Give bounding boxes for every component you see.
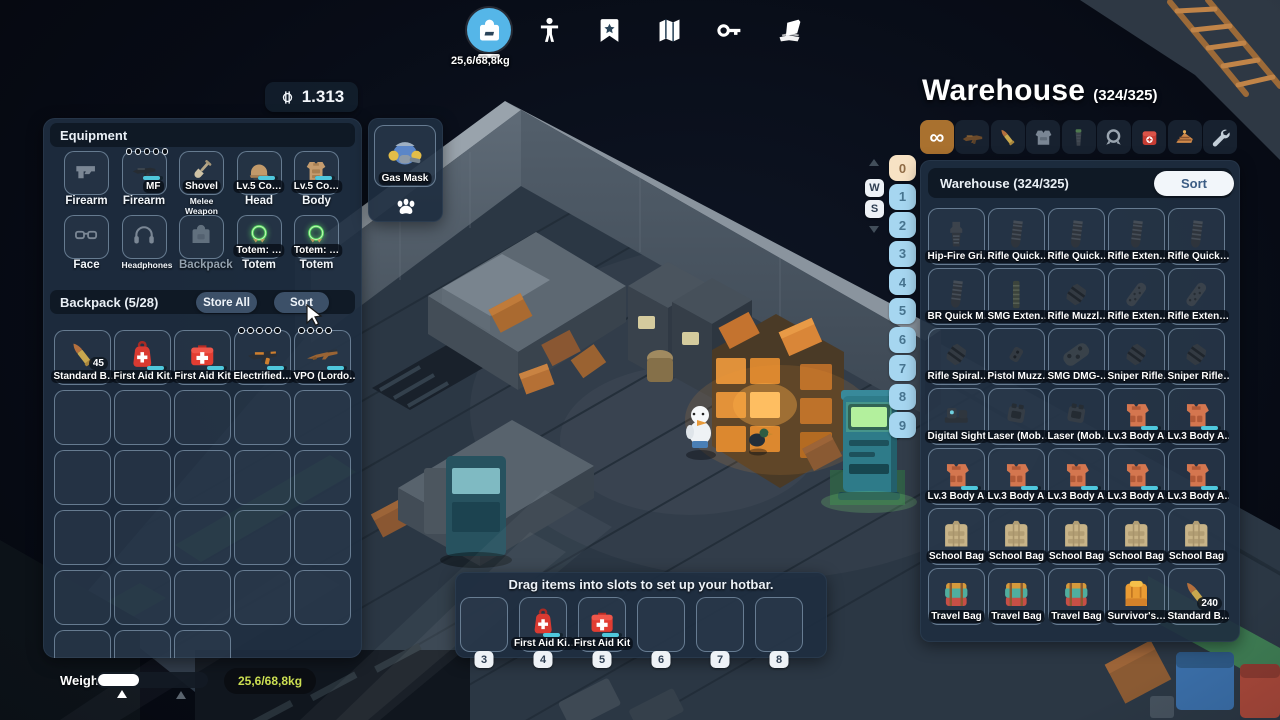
equipment-cell: ShovelMelee Weapon: [179, 151, 224, 213]
backpack-title: Backpack (5/28): [60, 295, 158, 310]
scroll-up-arrow[interactable]: [869, 159, 879, 166]
hotbar-key-badge: 7: [711, 651, 730, 668]
equipment-cell: Totem: …Totem: [294, 215, 339, 277]
equipment-cell: Headphones: [122, 215, 167, 277]
item-label: Rifle Exten…: [1105, 310, 1169, 323]
warehouse-tab-medical[interactable]: [1132, 120, 1166, 154]
warehouse-tab-tools[interactable]: [1203, 120, 1237, 154]
equipment-caption: Head: [237, 196, 282, 206]
key-icon: [715, 16, 744, 45]
item-label: Travel Bag: [1048, 610, 1105, 623]
hotbar-number-key-3[interactable]: 3: [889, 241, 916, 267]
hotbar-key-badge: 5: [593, 651, 612, 668]
hotbar-slot-wrap: 6: [637, 597, 685, 652]
hotbar-number-key-9[interactable]: 9: [889, 412, 916, 438]
item-label: Lv.5 Co…: [233, 180, 284, 193]
backpack-empty-slot[interactable]: [54, 390, 111, 445]
wrench-tab-icon: [1209, 126, 1232, 149]
weight-threshold-marker: [176, 691, 186, 699]
warehouse-item-slot[interactable]: School Bag: [928, 508, 985, 565]
item-label: First Aid Ki…: [511, 637, 575, 650]
item-label: Travel Bag: [928, 610, 985, 623]
paw-icon[interactable]: [393, 194, 419, 218]
toolbar-tab-missions[interactable]: [587, 8, 631, 52]
item-label: SMG DMG-…: [1045, 370, 1109, 383]
item-label: Lv.3 Body A…: [1165, 490, 1229, 503]
backpack-item-slot[interactable]: First Aid Kit: [174, 330, 231, 385]
equipment-cell: Lv.5 Co…Body: [294, 151, 339, 213]
item-label: Laser (Mob…: [985, 430, 1049, 443]
warehouse-item-slot[interactable]: Sniper Rifle…: [1108, 328, 1165, 385]
hotbar-key-badge: 3: [475, 651, 494, 668]
warehouse-item-slot[interactable]: Lv.3 Body A…: [1168, 448, 1225, 505]
item-label: Rifle Quick…: [1045, 250, 1109, 263]
warehouse-filter-tabs: ∞: [920, 120, 1237, 154]
item-label: First Aid Kit: [171, 370, 233, 383]
item-label: Totem: …: [291, 244, 342, 257]
warehouse-item-slot[interactable]: Digital Sight: [928, 388, 985, 445]
item-label: First Aid Kit: [571, 637, 633, 650]
backpack-empty-slot[interactable]: [54, 450, 111, 505]
warehouse-item-slot[interactable]: Rifle Muzzl…: [1048, 268, 1105, 325]
equipment-panel: Equipment FirearmMFFirearmShovelMelee We…: [43, 118, 362, 658]
hotbar-slot-wrap: 8: [755, 597, 803, 652]
rifle-tab-icon: [961, 126, 984, 149]
warehouse-item-slot[interactable]: Lv.3 Body A…: [928, 448, 985, 505]
hotbar-key-badge: 8: [770, 651, 789, 668]
item-label: Lv.3 Body A…: [1165, 430, 1229, 443]
equipment-cell: Backpack: [179, 215, 224, 277]
item-label: Travel Bag: [988, 610, 1045, 623]
equipment-cell: Face: [64, 215, 109, 277]
warehouse-sort-button[interactable]: Sort: [1154, 171, 1234, 196]
backpack-empty-slot[interactable]: [294, 390, 351, 445]
warehouse-grid: Hip-Fire Gri…Rifle Quick…Rifle Quick…Rif…: [928, 208, 1225, 625]
equipment-slot-melee-weapon[interactable]: Shovel: [179, 151, 224, 195]
backpack-empty-slot[interactable]: [294, 570, 351, 625]
warehouse-item-slot[interactable]: Laser (Mob…: [1048, 388, 1105, 445]
cake-tab-icon: [1173, 126, 1196, 149]
equipment-slot-totem[interactable]: Totem: …: [294, 215, 339, 259]
warehouse-tab-all[interactable]: ∞: [920, 120, 954, 154]
equipment-caption: Firearm: [122, 196, 167, 206]
hotbar-slots: 3First Aid Ki…4First Aid Kit5678: [460, 597, 803, 652]
item-label: School Bag: [926, 550, 987, 563]
gas-mask-panel: Gas Mask: [368, 118, 443, 222]
backpack-empty-slot[interactable]: [294, 450, 351, 505]
equipment-header: Equipment: [50, 123, 355, 147]
equipment-cell: Lv.5 Co…Head: [237, 151, 282, 213]
warehouse-item-slot[interactable]: School Bag: [1048, 508, 1105, 565]
backpack-item-slot[interactable]: First Aid Kit…: [114, 330, 171, 385]
item-label: Lv.3 Body A…: [925, 490, 989, 503]
headphones-icon: [123, 216, 166, 253]
item-label: Sniper Rifle…: [1105, 370, 1169, 383]
item-label: Standard B…: [51, 370, 115, 383]
equipment-slot-totem[interactable]: Totem: …: [237, 215, 282, 259]
equipment-grid: FirearmMFFirearmShovelMelee WeaponLv.5 C…: [64, 151, 339, 277]
toolbar-tab-keys[interactable]: [707, 8, 751, 52]
medbox-tab-icon: [1138, 126, 1161, 149]
hotbar-key-column: 0123456789: [889, 155, 916, 438]
warehouse-header-label: Warehouse (324/325): [940, 176, 1069, 191]
item-label: School Bag: [1046, 550, 1107, 563]
item-label: Rifle Exten…: [1105, 250, 1169, 263]
hotbar-key-badge: 6: [652, 651, 671, 668]
toolbar-tab-character[interactable]: [527, 8, 571, 52]
item-label: Lv.3 Body A…: [985, 490, 1049, 503]
equipment-caption: Totem: [237, 260, 282, 270]
warehouse-item-slot[interactable]: 240Standard B…: [1168, 568, 1225, 625]
quality-dots: [238, 327, 281, 334]
item-label: Electrified…: [231, 370, 295, 383]
quantity-badge: 240: [1197, 597, 1222, 610]
equipment-caption: Headphones: [122, 260, 167, 270]
item-label: Lv.5 Co…: [291, 180, 342, 193]
bookmark-star-icon: [595, 16, 624, 45]
map-icon: [655, 16, 684, 45]
warehouse-tab-accessories[interactable]: [1097, 120, 1131, 154]
backpack-empty-slot[interactable]: [114, 390, 171, 445]
backpack-item-slot[interactable]: 45Standard B…: [54, 330, 111, 385]
backpack-empty-slot[interactable]: [174, 630, 231, 658]
warehouse-item-slot[interactable]: Rifle Quick…: [1048, 208, 1105, 265]
gas-mask-slot[interactable]: Gas Mask: [374, 125, 436, 187]
backpack-empty-slot[interactable]: [174, 510, 231, 565]
warehouse-item-slot[interactable]: Lv.3 Body A…: [1168, 388, 1225, 445]
toolbar-weight-caption: 25,6/68,8kg: [451, 55, 510, 67]
equipment-caption: Firearm: [64, 196, 109, 206]
warehouse-item-slot[interactable]: Lv.3 Body A…: [1108, 388, 1165, 445]
hotbar-number-key-2[interactable]: 2: [889, 212, 916, 238]
hotbar-number-key-8[interactable]: 8: [889, 384, 916, 410]
backpack-empty-slot[interactable]: [174, 390, 231, 445]
item-label: School Bag: [986, 550, 1047, 563]
weight-bar-fill: [98, 674, 139, 686]
vest-tab-icon: [1032, 126, 1055, 149]
warehouse-tab-food[interactable]: [1168, 120, 1202, 154]
backpack-sort-button[interactable]: Sort: [274, 292, 329, 313]
hotbar-slot-wrap: First Aid Ki…4: [519, 597, 567, 652]
warehouse-item-slot[interactable]: Rifle Quick…: [1168, 208, 1225, 265]
item-label: School Bag: [1166, 550, 1227, 563]
equipment-cell: MFFirearm: [122, 151, 167, 213]
equipment-caption: Body: [294, 196, 339, 206]
warehouse-tab-ammo[interactable]: [991, 120, 1025, 154]
item-label: Rifle Quick…: [985, 250, 1049, 263]
item-label: Digital Sight: [925, 430, 989, 443]
hotbar-number-key-6[interactable]: 6: [889, 327, 916, 353]
warehouse-item-slot[interactable]: Rifle Exten…: [1108, 268, 1165, 325]
warehouse-tab-firearms[interactable]: [955, 120, 989, 154]
item-label: School Bag: [1106, 550, 1167, 563]
infinity-icon: ∞: [930, 127, 945, 148]
item-label: Rifle Muzzl…: [1045, 310, 1109, 323]
warehouse-tab-attachments[interactable]: [1062, 120, 1096, 154]
backpack-empty-slot[interactable]: [114, 510, 171, 565]
backpack-empty-slot[interactable]: [294, 510, 351, 565]
warehouse-panel: Warehouse (324/325) Sort Hip-Fire Gri…Ri…: [920, 160, 1240, 642]
backpack-ghost-icon: [180, 216, 223, 253]
warehouse-item-slot[interactable]: Rifle Quick…: [988, 208, 1045, 265]
item-label: VPO (Lordo…: [291, 370, 355, 383]
item-label: Survivor's…: [1105, 610, 1169, 623]
warehouse-tab-armor[interactable]: [1026, 120, 1060, 154]
hotbar-slot-3[interactable]: [460, 597, 508, 652]
warehouse-item-slot[interactable]: School Bag: [1108, 508, 1165, 565]
warehouse-item-slot[interactable]: Hip-Fire Gri…: [928, 208, 985, 265]
backpack-empty-slot[interactable]: [114, 630, 171, 658]
warehouse-item-slot[interactable]: Travel Bag: [988, 568, 1045, 625]
warehouse-item-slot[interactable]: Travel Bag: [928, 568, 985, 625]
warehouse-item-slot[interactable]: Pistol Muzz…: [988, 328, 1045, 385]
hotbar-number-key-0[interactable]: 0: [889, 155, 916, 181]
equipment-caption: Face: [64, 260, 109, 270]
quality-dots: [298, 327, 332, 334]
key-w: W: [865, 179, 884, 197]
warehouse-item-slot[interactable]: Lv.3 Body A…: [1108, 448, 1165, 505]
weight-value: 25,6/68,8kg: [224, 668, 316, 694]
warehouse-item-slot[interactable]: School Bag: [1168, 508, 1225, 565]
equipment-title: Equipment: [60, 128, 127, 143]
journal-icon: [775, 16, 804, 45]
backpack-grid: 45Standard B…First Aid Kit…First Aid Kit…: [54, 330, 351, 658]
backpack-empty-slot[interactable]: [174, 570, 231, 625]
weight-bar: [96, 672, 208, 688]
hotbar-number-key-7[interactable]: 7: [889, 355, 916, 381]
hotbar-key-badge: 4: [534, 651, 553, 668]
game-screen: 25,6/68,8kg 1.313 Equipment FirearmMFFir…: [0, 0, 1280, 720]
person-icon: [535, 16, 564, 45]
item-label: Rifle Spiral…: [925, 370, 989, 383]
store-all-button[interactable]: Store All: [196, 292, 257, 313]
item-label: Lv.3 Body A…: [1045, 490, 1109, 503]
currency-value: 1.313: [302, 87, 345, 107]
backpack-item-slot[interactable]: Electrified…: [234, 330, 291, 385]
item-label: Rifle Exten…: [1165, 310, 1229, 323]
grip-tab-icon: [1067, 126, 1090, 149]
warehouse-count: (324/325): [1093, 87, 1157, 104]
hotbar-number-key-5[interactable]: 5: [889, 298, 916, 324]
ring-tab-icon: [1102, 126, 1125, 149]
equipment-slot-face[interactable]: [64, 215, 109, 259]
warehouse-item-slot[interactable]: Lv.3 Body A…: [988, 448, 1045, 505]
currency-display: 1.313: [265, 82, 358, 112]
backpack-empty-slot[interactable]: [54, 630, 111, 658]
hotbar-slot-wrap: 7: [696, 597, 744, 652]
scroll-down-arrow[interactable]: [869, 226, 879, 233]
warehouse-item-slot[interactable]: Sniper Rifle…: [1168, 328, 1225, 385]
backpack-empty-slot[interactable]: [114, 570, 171, 625]
item-label: BR Quick M…: [925, 310, 989, 323]
item-label: Lv.3 Body A…: [1105, 430, 1169, 443]
warehouse-title-text: Warehouse: [922, 74, 1085, 108]
warehouse-item-slot[interactable]: Travel Bag: [1048, 568, 1105, 625]
equipment-caption: Melee Weapon: [179, 196, 224, 216]
warehouse-item-slot[interactable]: SMG Exten…: [988, 268, 1045, 325]
equipment-slot-head[interactable]: Lv.5 Co…: [237, 151, 282, 195]
hotbar-slot-5[interactable]: First Aid Kit: [578, 597, 626, 652]
hotbar-slot-wrap: First Aid Kit5: [578, 597, 626, 652]
hotbar-slot-4[interactable]: First Aid Ki…: [519, 597, 567, 652]
key-s: S: [865, 200, 884, 218]
backpack-empty-slot[interactable]: [234, 510, 291, 565]
hotbar-number-key-4[interactable]: 4: [889, 269, 916, 295]
item-label: Totem: …: [233, 244, 284, 257]
backpack-empty-slot[interactable]: [54, 510, 111, 565]
equipment-caption: Backpack: [179, 260, 224, 270]
item-label: Laser (Mob…: [1045, 430, 1109, 443]
backpack-empty-slot[interactable]: [54, 570, 111, 625]
warehouse-item-slot[interactable]: Rifle Spiral…: [928, 328, 985, 385]
coin-icon: [279, 89, 296, 106]
hotbar-slot-7[interactable]: [696, 597, 744, 652]
glasses-icon: [65, 216, 108, 253]
hotbar-slot-wrap: 3: [460, 597, 508, 652]
item-label: First Aid Kit…: [111, 370, 175, 383]
equipment-slot-firearm[interactable]: MF: [122, 151, 167, 195]
item-label: Rifle Quick…: [1165, 250, 1229, 263]
equipment-slot-firearm[interactable]: [64, 151, 109, 195]
backpack-empty-slot[interactable]: [174, 450, 231, 505]
quality-dots: [126, 148, 169, 155]
hotbar-slot-8[interactable]: [755, 597, 803, 652]
warehouse-item-slot[interactable]: Rifle Exten…: [1168, 268, 1225, 325]
equipment-slot-body[interactable]: Lv.5 Co…: [294, 151, 339, 195]
weight-marker: [117, 690, 127, 698]
item-label: Pistol Muzz…: [985, 370, 1049, 383]
backpack-item-slot[interactable]: VPO (Lordo…: [294, 330, 351, 385]
backpack-empty-slot[interactable]: [234, 450, 291, 505]
equipment-slot-headphones[interactable]: [122, 215, 167, 259]
item-label: Hip-Fire Gri…: [925, 250, 989, 263]
warehouse-title: Warehouse (324/325): [922, 74, 1158, 108]
quantity-badge: 45: [89, 357, 108, 370]
item-label: MF: [143, 180, 163, 193]
equipment-cell: Firearm: [64, 151, 109, 213]
bullet-icon: [996, 126, 1019, 149]
warehouse-item-slot[interactable]: BR Quick M…: [928, 268, 985, 325]
top-toolbar: [467, 8, 811, 52]
backpack-icon: [475, 16, 504, 45]
item-label: Standard B…: [1165, 610, 1229, 623]
toolbar-tab-map[interactable]: [647, 8, 691, 52]
equipment-cell: Totem: …Totem: [237, 215, 282, 277]
item-label: Gas Mask: [379, 172, 432, 185]
hotbar-number-key-1[interactable]: 1: [889, 184, 916, 210]
warehouse-item-slot[interactable]: Survivor's…: [1108, 568, 1165, 625]
backpack-empty-slot[interactable]: [234, 390, 291, 445]
warehouse-item-slot[interactable]: School Bag: [988, 508, 1045, 565]
item-label: SMG Exten…: [985, 310, 1049, 323]
backpack-empty-slot[interactable]: [234, 570, 291, 625]
toolbar-tab-inventory[interactable]: [467, 8, 511, 52]
warehouse-item-slot[interactable]: Rifle Exten…: [1108, 208, 1165, 265]
equipment-caption: Totem: [294, 260, 339, 270]
item-label: Lv.3 Body A…: [1105, 490, 1169, 503]
warehouse-item-slot[interactable]: SMG DMG-…: [1048, 328, 1105, 385]
toolbar-tab-journal[interactable]: [767, 8, 811, 52]
warehouse-item-slot[interactable]: Lv.3 Body A…: [1048, 448, 1105, 505]
item-label: Shovel: [182, 180, 221, 193]
pistol-icon: [65, 152, 108, 189]
warehouse-item-slot[interactable]: Laser (Mob…: [988, 388, 1045, 445]
equipment-slot-backpack[interactable]: [179, 215, 224, 259]
item-label: Sniper Rifle…: [1165, 370, 1229, 383]
hotbar-hint: Drag items into slots to set up your hot…: [455, 577, 827, 592]
backpack-empty-slot[interactable]: [114, 450, 171, 505]
hotbar-slot-6[interactable]: [637, 597, 685, 652]
hotbar-panel: Drag items into slots to set up your hot…: [455, 572, 827, 658]
